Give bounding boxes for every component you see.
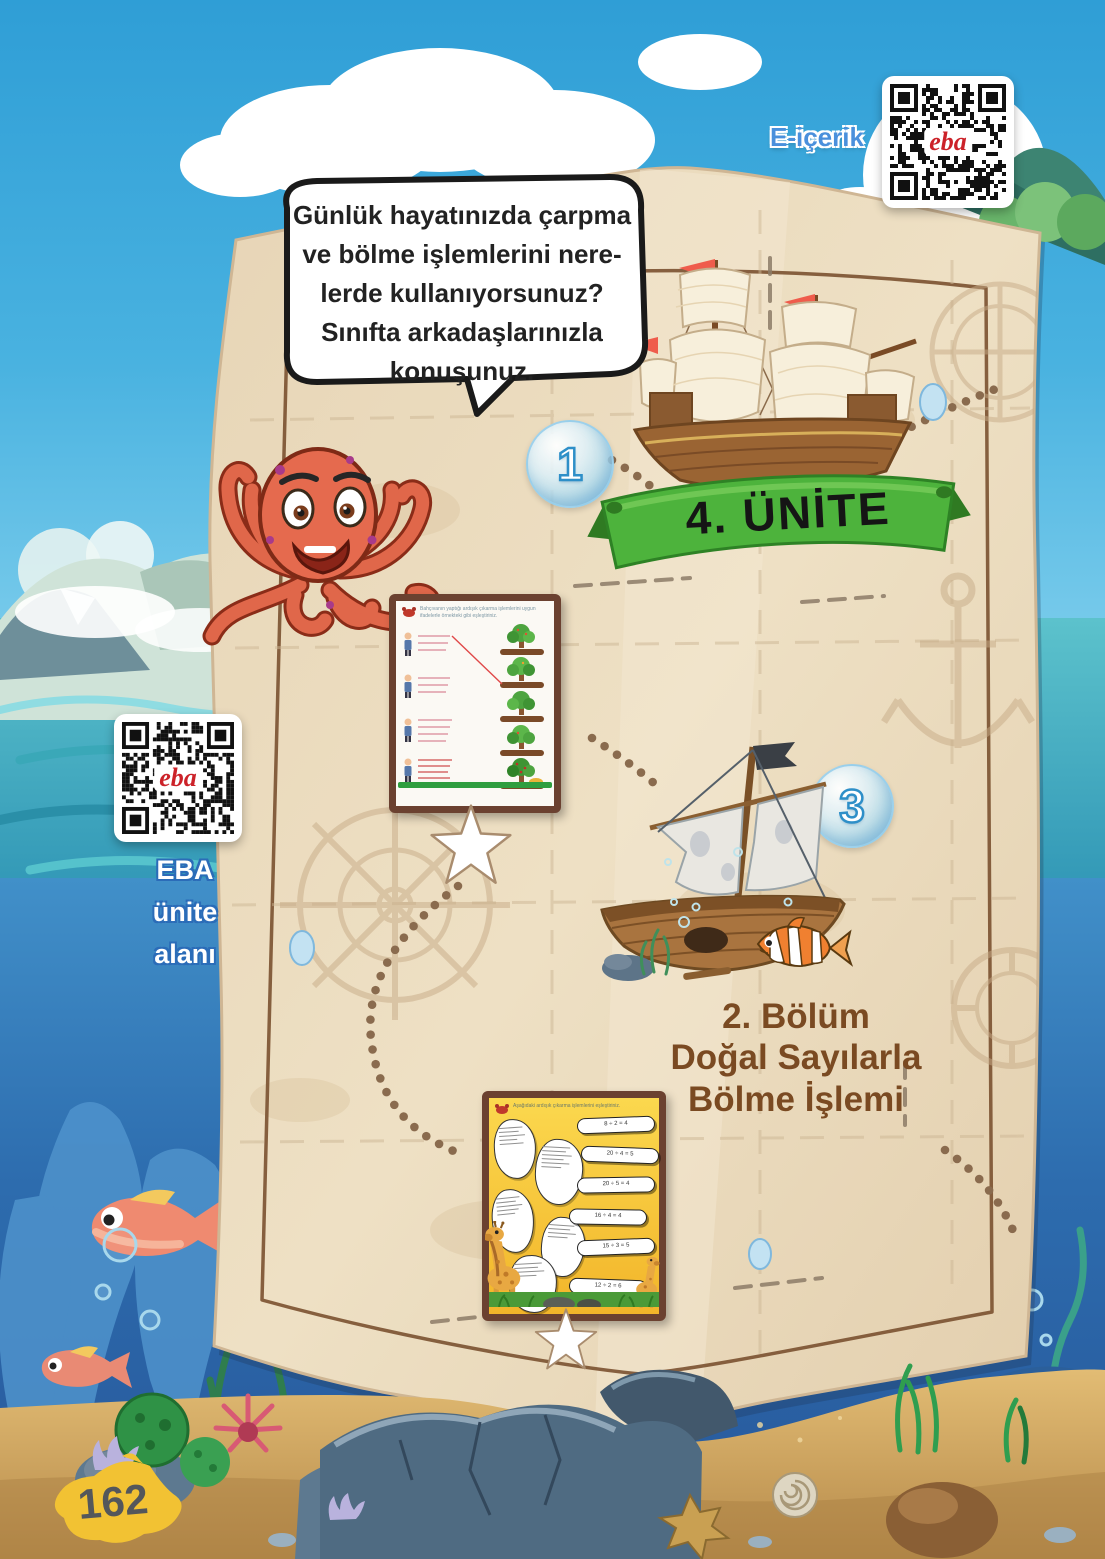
subtraction-bubble	[492, 1118, 538, 1181]
worksheet-thumbnail-matching-trees: Bahçıvanın yaptığı ardışık çıkarma işlem…	[389, 594, 561, 813]
compass-watermark	[932, 284, 1068, 420]
gardener-figures	[405, 632, 412, 782]
worksheet1-body	[396, 622, 554, 790]
section-line1: 2. Bölüm	[636, 996, 956, 1037]
qr-code-e-content: eba	[882, 76, 1014, 208]
division-answer-pill: 16 ÷ 4 = 4	[569, 1208, 647, 1225]
e-content-label: E-içerik	[770, 122, 864, 153]
eba-label-line: ünite	[120, 892, 250, 934]
division-answer-pill: 8 ÷ 2 = 4	[577, 1116, 656, 1135]
speech-line: konuşunuz.	[288, 352, 636, 391]
worksheet-thumbnail-division-matching: Aşağıdaki ardışık çıkarma işlemlerini eş…	[482, 1091, 666, 1321]
shipwreck-boat-illustration	[588, 732, 858, 1002]
eba-label-line: EBA	[120, 850, 250, 892]
worksheet1-graphics	[396, 622, 554, 790]
worksheet2-body: 8 ÷ 2 = 4 20 ÷ 4 = 5 20 ÷ 5 = 4 16 ÷ 4 =…	[489, 1117, 659, 1307]
speech-bubble-text: Günlük hayatınızda çarpma ve bölme işlem…	[288, 196, 636, 391]
worksheet2-grass	[489, 1292, 659, 1307]
eba-logo: eba	[924, 129, 972, 155]
speech-line: Sınıfta arkadaşlarınızla	[288, 313, 636, 352]
speech-line: lerde kullanıyorsunuz?	[288, 274, 636, 313]
star-marker-1	[428, 804, 514, 886]
crab-icon	[401, 606, 417, 618]
eba-logo: eba	[154, 765, 202, 791]
worksheet1-instruction: Bahçıvanın yaptığı ardışık çıkarma işlem…	[420, 606, 538, 620]
section-title: 2. Bölüm Doğal Sayılarla Bölme İşlemi	[636, 996, 956, 1120]
page-number: 162	[56, 1473, 170, 1530]
subtraction-bubble	[533, 1138, 584, 1206]
map-marker-1: 1	[526, 420, 614, 508]
speech-line: ve bölme işlemlerini nere-	[288, 235, 636, 274]
tree-icons	[500, 624, 544, 789]
division-answer-pill: 20 ÷ 4 = 5	[581, 1146, 660, 1165]
section-line3: Bölme İşlemi	[636, 1079, 956, 1120]
section-line2: Doğal Sayılarla	[636, 1037, 956, 1078]
qr-code-eba-unit: eba	[114, 714, 242, 842]
worksheet2-instruction: Aşağıdaki ardışık çıkarma işlemlerini eş…	[513, 1103, 631, 1110]
crab-icon	[494, 1103, 510, 1115]
worksheet1-footer-bar	[398, 782, 552, 788]
division-answer-pill: 20 ÷ 5 = 4	[577, 1176, 655, 1193]
marker-1-number: 1	[557, 438, 583, 490]
eba-unit-area-label: EBA ünite alanı	[120, 850, 250, 976]
spiral-shell	[773, 1473, 817, 1517]
equation-scribbles	[418, 636, 452, 784]
textbook-page: 4. ÜNİTE Günlük hayatınızda çarpma ve bö…	[0, 0, 1105, 1559]
matching-line	[452, 636, 502, 684]
eba-label-line: alanı	[120, 934, 250, 976]
speech-line: Günlük hayatınızda çarpma	[288, 196, 636, 235]
